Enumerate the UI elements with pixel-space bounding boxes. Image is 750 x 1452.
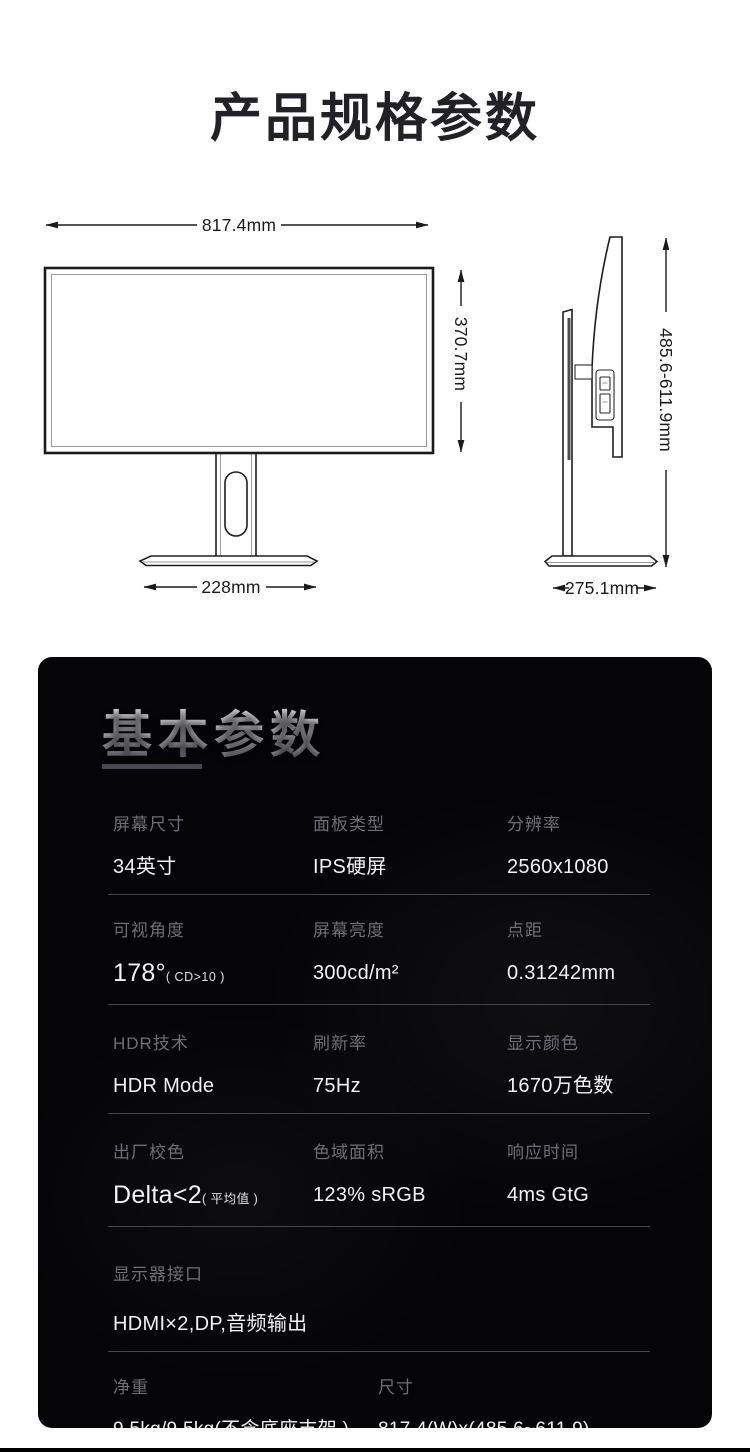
front-view-drawing: 817.4mm 370.7mm 228mm xyxy=(45,215,471,597)
spec-row: 净重 9.5kg/9.5kg(不含底座支架 ) 尺寸 817.4(W)x(485… xyxy=(38,1377,712,1428)
spec-cell-screen-size: 屏幕尺寸 34英寸 xyxy=(113,814,313,881)
spec-label: 分辨率 xyxy=(507,814,712,836)
row-divider xyxy=(108,1004,650,1005)
spec-value-note: ( 平均值 ) xyxy=(202,1192,258,1206)
spec-row: 屏幕尺寸 34英寸 面板类型 IPS硬屏 分辨率 2560x1080 xyxy=(38,814,712,881)
spec-cell-resolution: 分辨率 2560x1080 xyxy=(507,814,712,881)
row-divider xyxy=(108,1113,650,1114)
spec-value: 2560x1080 xyxy=(507,853,712,881)
spec-value: IPS硬屏 xyxy=(313,853,507,881)
spec-cell-hdr: HDR技术 HDR Mode xyxy=(113,1033,313,1100)
spec-value: Delta<2( 平均值 ) xyxy=(113,1181,313,1213)
spec-cell-brightness: 屏幕亮度 300cd/m² xyxy=(313,920,507,991)
side-port-slot xyxy=(600,394,610,413)
stand-cable-cutout xyxy=(225,472,247,536)
spec-table: 屏幕尺寸 34英寸 面板类型 IPS硬屏 分辨率 2560x1080 可视角度 … xyxy=(38,814,712,1428)
spec-cell-color-gamut: 色域面积 123% sRGB xyxy=(313,1142,507,1213)
side-depth-dimension: 275.1mm xyxy=(565,578,639,598)
row-divider xyxy=(108,1226,650,1227)
spec-value: 817.4(W)x(485.6~611.9)(H)x275.1(D)mm xyxy=(378,1416,712,1428)
spec-cell-factory-calibration: 出厂校色 Delta<2( 平均值 ) xyxy=(113,1142,313,1213)
front-height-dimension: 370.7mm xyxy=(451,317,471,391)
spec-cell-response-time: 响应时间 4ms GtG xyxy=(507,1142,712,1213)
spec-label: 屏幕亮度 xyxy=(313,920,507,942)
spec-cell-display-colors: 显示颜色 1670万色数 xyxy=(507,1033,712,1100)
row-divider xyxy=(108,1351,650,1352)
spec-value: 178°( CD>10 ) xyxy=(113,959,313,991)
side-height-range-dimension: 485.6-611.9mm xyxy=(656,328,676,452)
spec-cell-panel-type: 面板类型 IPS硬屏 xyxy=(313,814,507,881)
spec-label: 屏幕尺寸 xyxy=(113,814,313,836)
spec-value: 75Hz xyxy=(313,1072,507,1100)
spec-label: 色域面积 xyxy=(313,1142,507,1164)
spec-value: 4ms GtG xyxy=(507,1181,712,1209)
spec-label: 显示颜色 xyxy=(507,1033,712,1055)
front-width-dimension: 817.4mm xyxy=(202,215,276,235)
spec-value-note: ( CD>10 ) xyxy=(166,970,225,984)
front-base-width-dimension: 228mm xyxy=(201,577,260,597)
spec-value: 1670万色数 xyxy=(507,1072,712,1100)
spec-row: 显示器接口 HDMI×2,DP,音频输出 xyxy=(38,1264,712,1338)
spec-label: 响应时间 xyxy=(507,1142,712,1164)
spec-label: 面板类型 xyxy=(313,814,507,836)
spec-value: HDR Mode xyxy=(113,1072,313,1100)
spec-value-main: Delta<2 xyxy=(113,1181,202,1209)
spec-label: 尺寸 xyxy=(378,1377,712,1399)
spec-label: 可视角度 xyxy=(113,920,313,942)
monitor-dimension-diagram: 817.4mm 370.7mm 228mm xyxy=(0,190,750,620)
spec-value: 123% sRGB xyxy=(313,1181,507,1209)
spec-label: 净重 xyxy=(113,1377,378,1399)
spec-label: 显示器接口 xyxy=(113,1264,712,1286)
spec-row: 可视角度 178°( CD>10 ) 屏幕亮度 300cd/m² 点距 0.31… xyxy=(38,920,712,991)
spec-row: HDR技术 HDR Mode 刷新率 75Hz 显示颜色 1670万色数 xyxy=(38,1033,712,1100)
spec-cell-viewing-angle: 可视角度 178°( CD>10 ) xyxy=(113,920,313,991)
heading-underline xyxy=(102,764,202,769)
spec-cell-refresh-rate: 刷新率 75Hz xyxy=(313,1033,507,1100)
spec-value: 300cd/m² xyxy=(313,959,507,987)
monitor-front-outline xyxy=(45,268,433,453)
row-divider xyxy=(108,894,650,895)
spec-cell-ports: 显示器接口 HDMI×2,DP,音频输出 xyxy=(113,1264,712,1338)
spec-cell-dimensions: 尺寸 817.4(W)x(485.6~611.9)(H)x275.1(D)mm xyxy=(378,1377,712,1428)
spec-value: HDMI×2,DP,音频输出 xyxy=(113,1310,712,1338)
spec-label: 刷新率 xyxy=(313,1033,507,1055)
side-stand-base xyxy=(545,556,657,566)
spec-value: 34英寸 xyxy=(113,853,313,881)
spec-row: 出厂校色 Delta<2( 平均值 ) 色域面积 123% sRGB 响应时间 … xyxy=(38,1142,712,1213)
spec-value-main: 178° xyxy=(113,959,166,987)
spec-label: HDR技术 xyxy=(113,1033,313,1055)
spec-label: 点距 xyxy=(507,920,712,942)
page-title: 产品规格参数 xyxy=(0,76,750,151)
spec-cell-net-weight: 净重 9.5kg/9.5kg(不含底座支架 ) xyxy=(113,1377,378,1428)
spec-value: 9.5kg/9.5kg(不含底座支架 ) xyxy=(113,1416,378,1428)
spec-cell-pixel-pitch: 点距 0.31242mm xyxy=(507,920,712,991)
product-spec-page: 产品规格参数 817.4mm xyxy=(0,0,750,1452)
panel-heading: 基本参数 xyxy=(102,695,326,767)
side-view-drawing: 485.6-611.9mm 275.1mm xyxy=(545,237,676,598)
section-separator-bar xyxy=(0,1448,750,1452)
side-hinge xyxy=(575,365,592,379)
spec-label: 出厂校色 xyxy=(113,1142,313,1164)
front-stand-base xyxy=(140,556,317,566)
basic-parameters-panel: 基本参数 屏幕尺寸 34英寸 面板类型 IPS硬屏 分辨率 2560x1080 xyxy=(38,657,712,1428)
side-stand-neck xyxy=(592,237,622,457)
spec-value: 0.31242mm xyxy=(507,959,712,987)
